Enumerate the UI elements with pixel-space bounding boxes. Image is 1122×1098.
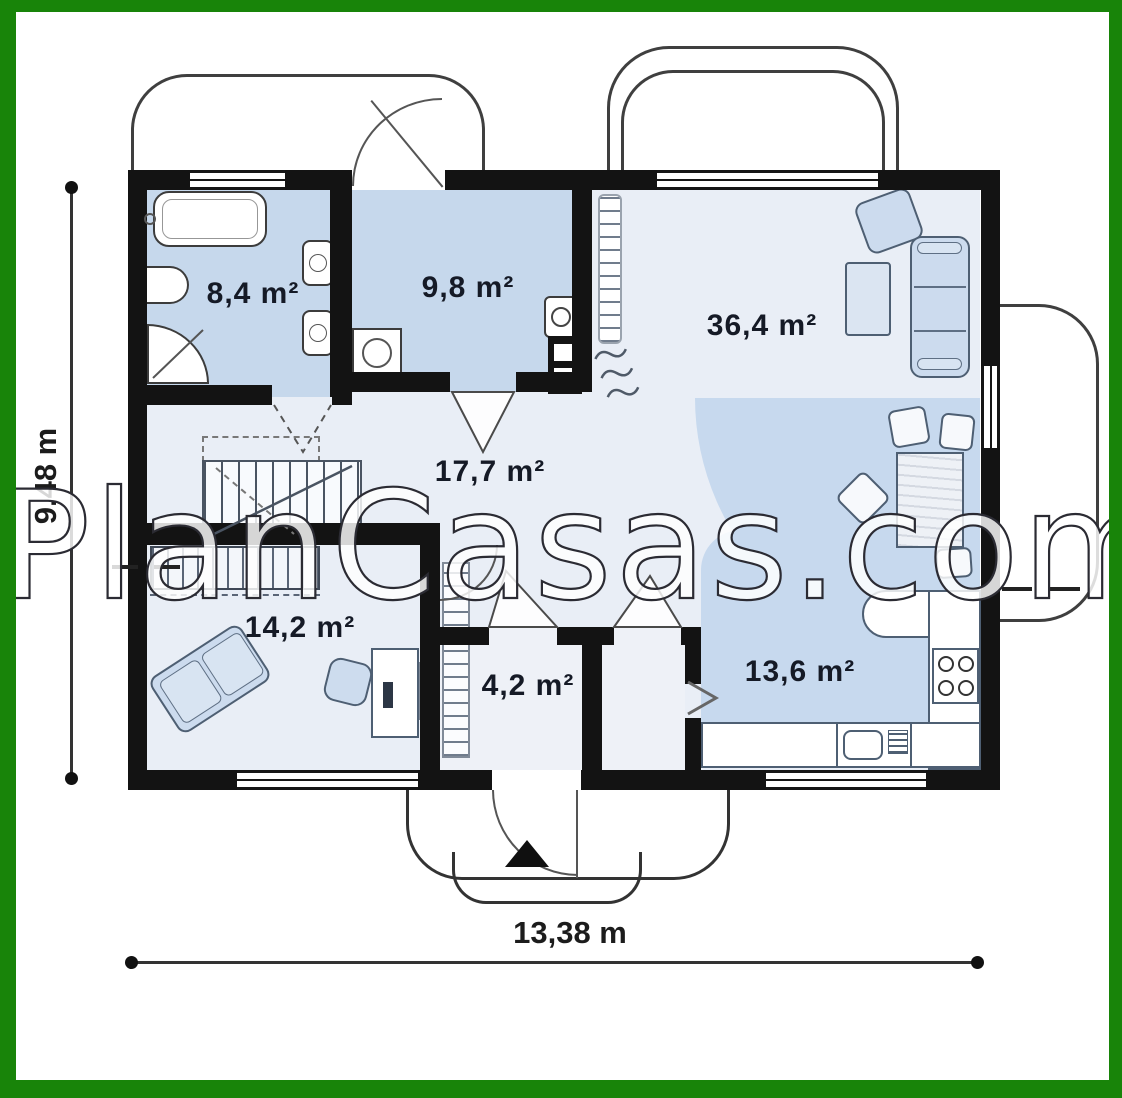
room-label-living: 36,4 m² (672, 306, 852, 346)
room-label-bathroom: 8,4 m² (163, 274, 343, 314)
room-label-kitchen: 13,6 m² (710, 652, 890, 692)
dimension-width-label: 13,38 m (470, 915, 670, 951)
door-swing-utility (452, 392, 514, 452)
radiator-squiggle-icon (594, 345, 640, 401)
door-swing-vestibule (489, 571, 557, 627)
entrance-arrow-icon (505, 840, 549, 867)
dimension-height-label: 9,48 m (28, 421, 64, 531)
floor-plan: 8,4 m² 9,8 m² 36,4 m² 17,7 m² 14,2 m² 4,… (0, 0, 1122, 1098)
room-label-hall: 17,7 m² (400, 452, 580, 492)
door-swing-bathroom-dashed (274, 405, 331, 452)
shower-diagonal (153, 330, 203, 378)
room-label-utility: 9,8 m² (378, 268, 558, 308)
room-label-bedroom: 14,2 m² (210, 608, 390, 648)
room-label-vestibule: 4,2 m² (438, 666, 618, 706)
bathtub-faucet-icon (145, 214, 155, 224)
stairs-diagonal-solid (214, 466, 352, 534)
door-swing-storage (614, 576, 681, 627)
